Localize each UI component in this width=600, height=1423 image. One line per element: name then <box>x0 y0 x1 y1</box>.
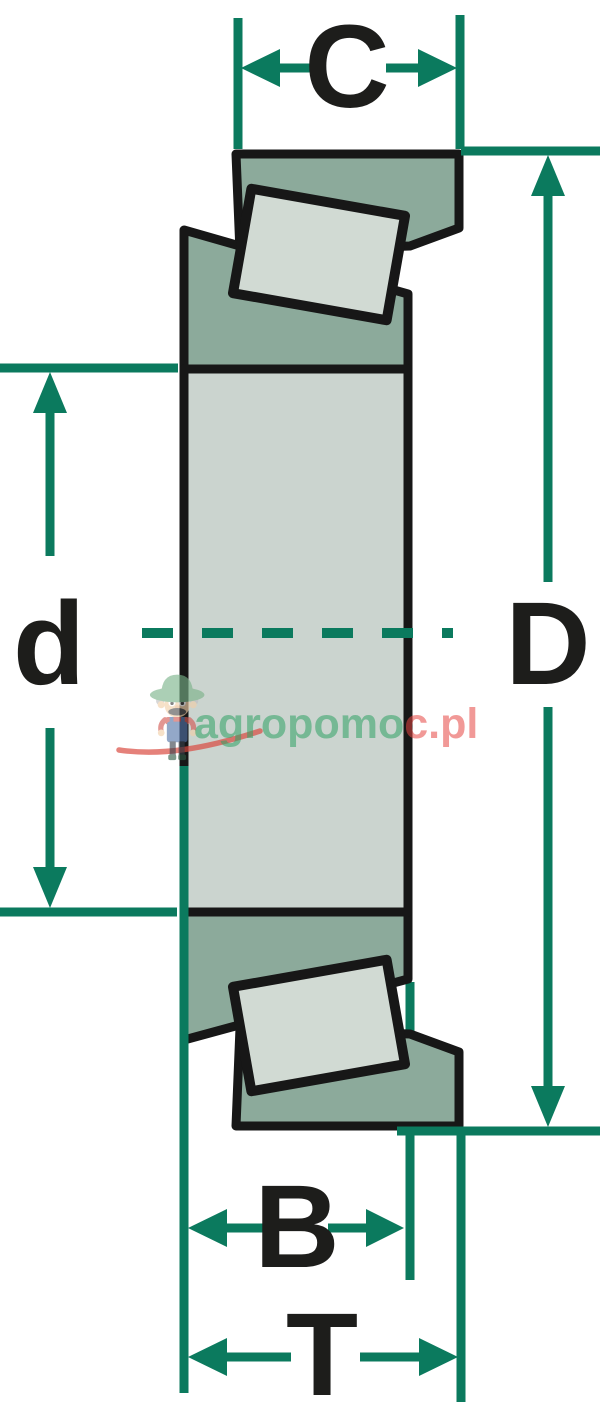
label-d-bore: d <box>13 585 85 703</box>
label-t: T <box>286 1296 358 1414</box>
dim-t-right-arrowhead <box>419 1338 458 1376</box>
roller-top <box>233 189 405 320</box>
dim-d-down-arrowhead <box>531 1086 565 1127</box>
roller-bottom <box>233 960 405 1091</box>
dim-t-left-arrowhead <box>188 1338 227 1376</box>
bearing-dimension-diagram: C D d B T <box>0 0 600 1423</box>
label-d-outer: D <box>505 585 590 703</box>
dim-bore-up-arrowhead <box>33 372 67 413</box>
dim-b-right-arrowhead <box>366 1209 404 1247</box>
dim-bore-down-arrowhead <box>33 867 67 908</box>
label-b: B <box>254 1168 339 1286</box>
dim-b-left-arrowhead <box>188 1209 227 1247</box>
label-c: C <box>304 8 389 126</box>
dim-d-up-arrowhead <box>531 155 565 196</box>
inner-ring-body <box>184 369 408 912</box>
dim-c-right-arrowhead <box>418 49 457 87</box>
dim-c-left-arrowhead <box>241 49 280 87</box>
bearing-section <box>184 154 459 1126</box>
